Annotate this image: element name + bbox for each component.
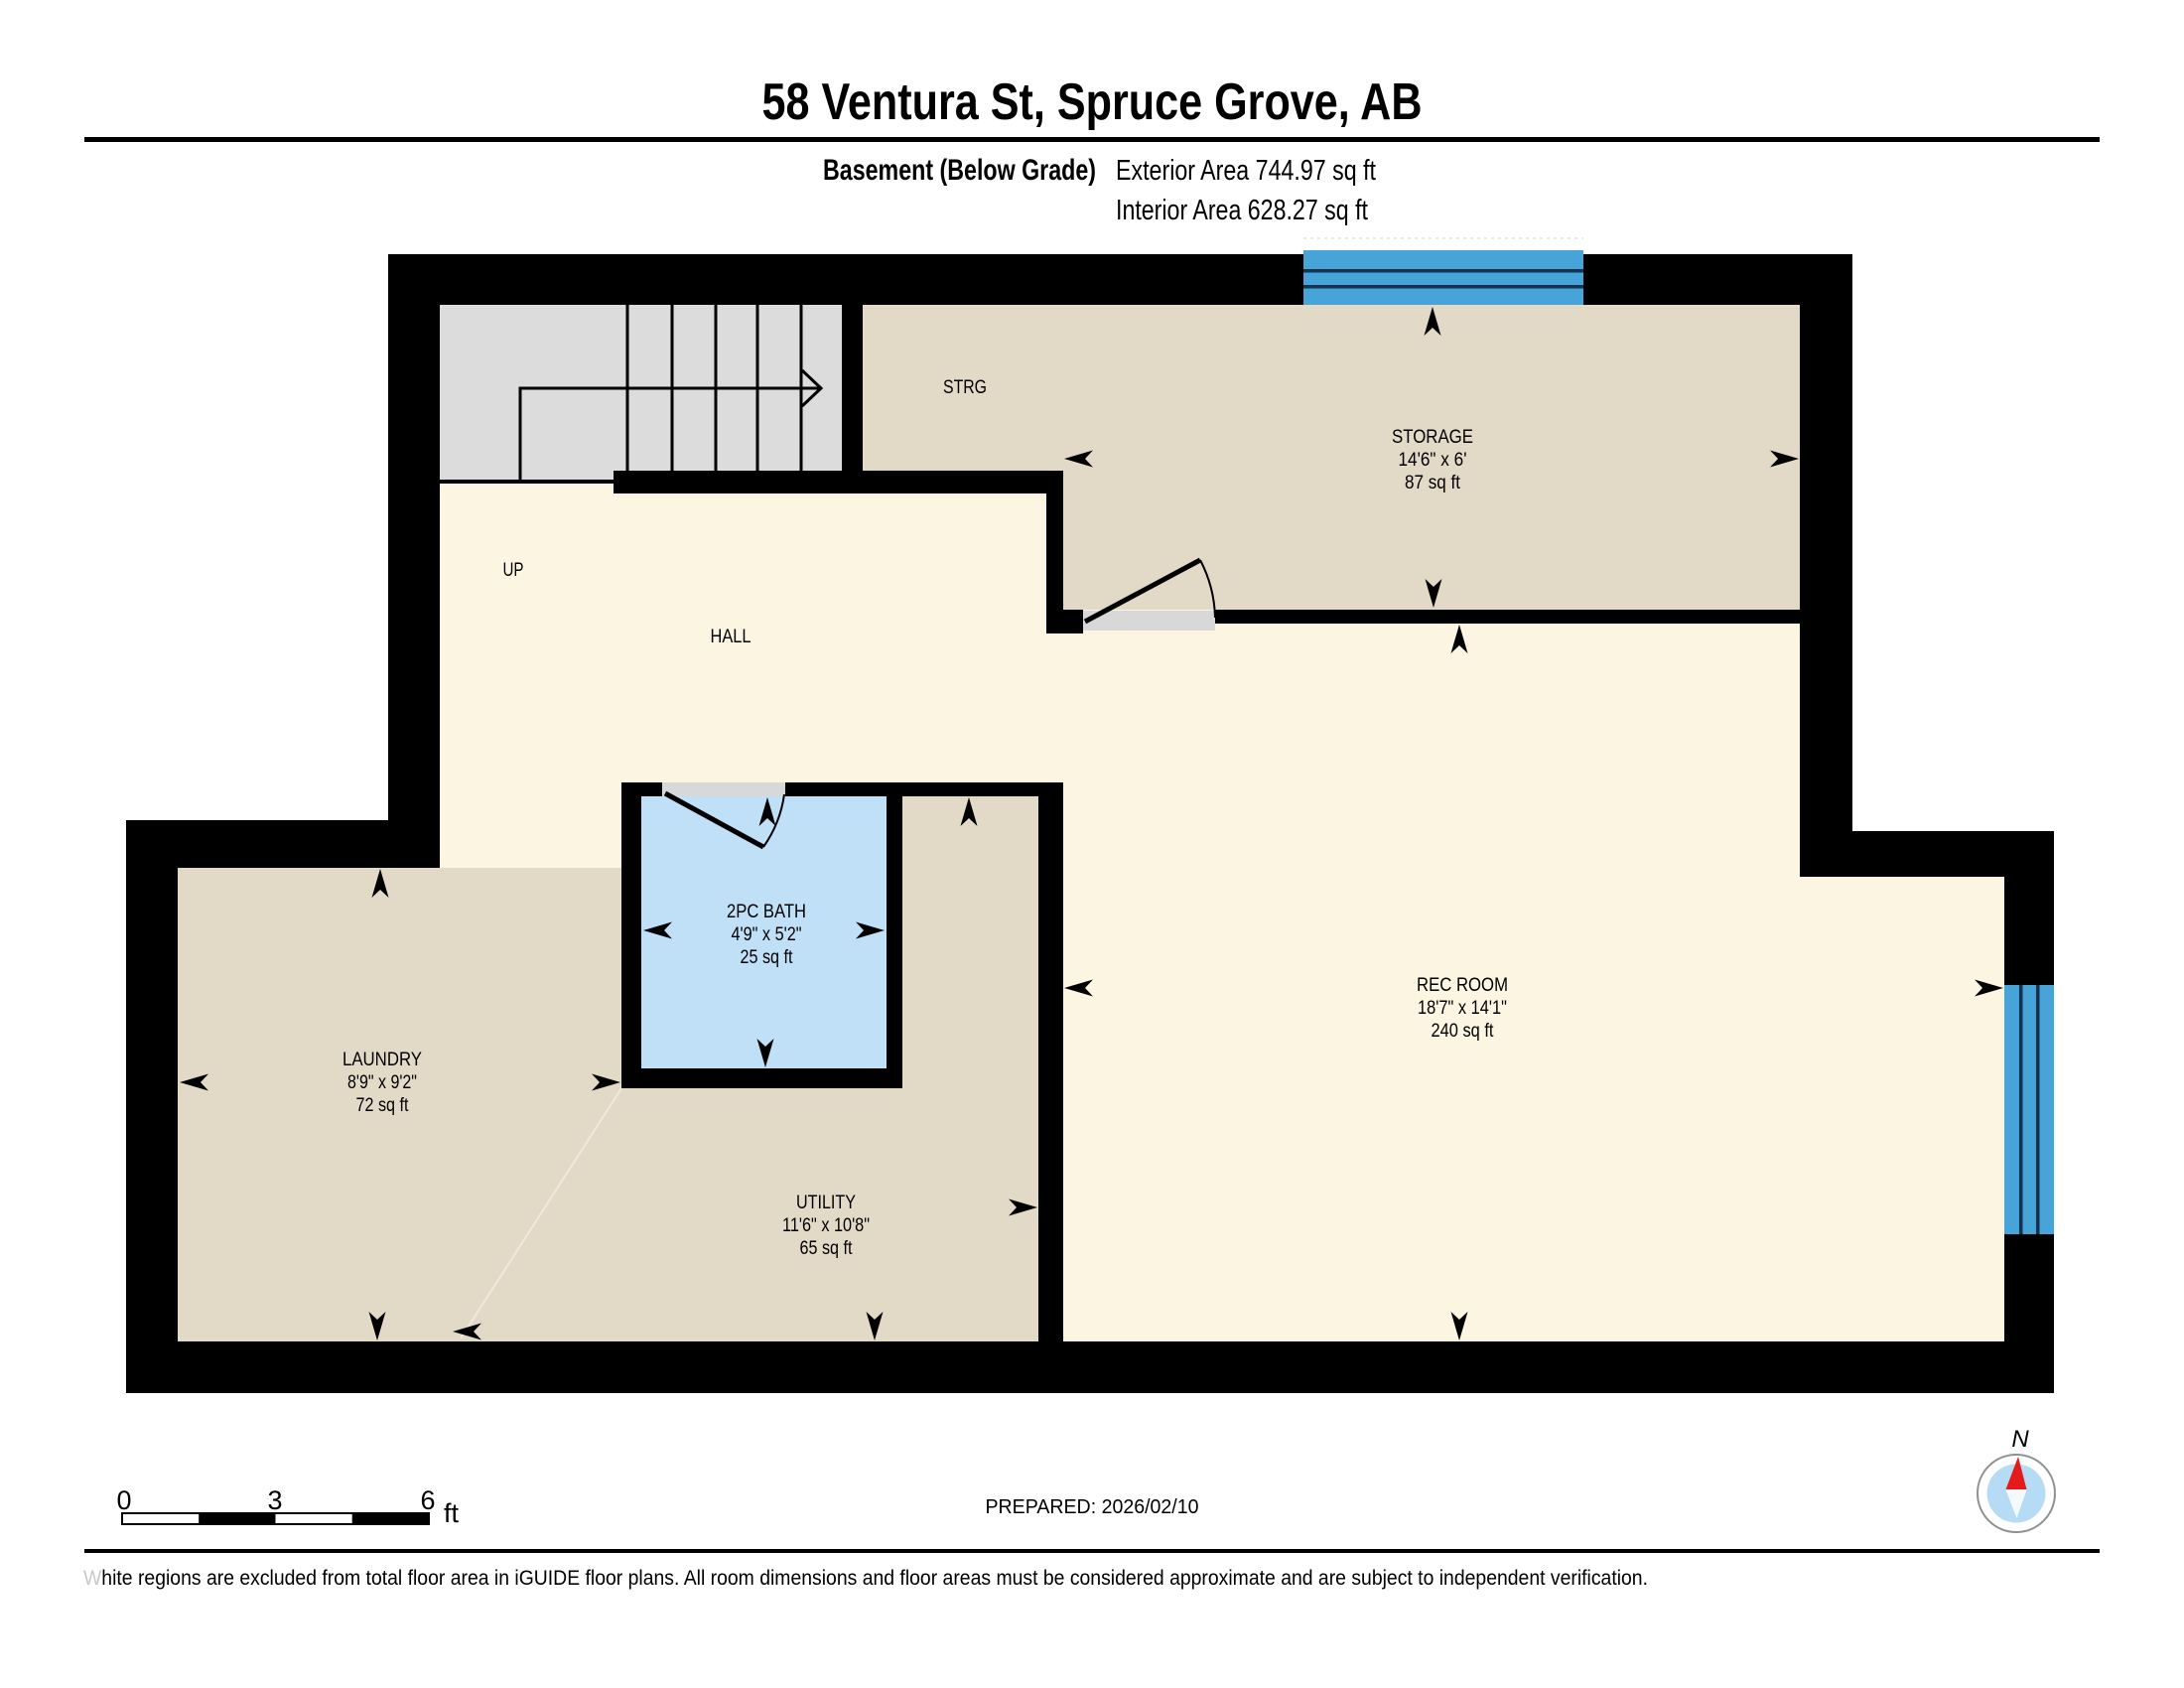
svg-text:18'7" x 14'1": 18'7" x 14'1" <box>1418 998 1507 1019</box>
svg-text:11'6" x 10'8": 11'6" x 10'8" <box>782 1215 870 1236</box>
svg-text:HALL: HALL <box>711 627 751 647</box>
svg-text:STRG: STRG <box>943 377 987 398</box>
svg-text:PREPARED: 2026/02/10: PREPARED: 2026/02/10 <box>986 1496 1199 1518</box>
svg-text:STORAGE: STORAGE <box>1392 427 1473 448</box>
svg-text:0: 0 <box>116 1485 131 1515</box>
svg-text:6: 6 <box>420 1485 435 1515</box>
svg-text:White regions are excluded fro: White regions are excluded from total fl… <box>83 1567 1648 1590</box>
svg-text:UP: UP <box>503 560 524 581</box>
svg-text:8'9" x 9'2": 8'9" x 9'2" <box>347 1072 417 1093</box>
svg-text:65 sq ft: 65 sq ft <box>800 1238 854 1259</box>
svg-text:ft: ft <box>444 1498 460 1528</box>
svg-text:4'9" x 5'2": 4'9" x 5'2" <box>732 924 802 945</box>
svg-text:14'6" x 6': 14'6" x 6' <box>1399 450 1467 471</box>
svg-text:87 sq ft: 87 sq ft <box>1405 473 1461 493</box>
svg-text:Basement (Below Grade): Basement (Below Grade) <box>823 154 1096 187</box>
svg-text:UTILITY: UTILITY <box>796 1193 856 1213</box>
svg-text:72 sq ft: 72 sq ft <box>356 1095 410 1116</box>
svg-text:Exterior Area 744.97 sq ft: Exterior Area 744.97 sq ft <box>1116 155 1376 187</box>
svg-text:2PC BATH: 2PC BATH <box>727 902 806 922</box>
svg-text:LAUNDRY: LAUNDRY <box>342 1050 422 1070</box>
svg-text:REC ROOM: REC ROOM <box>1417 975 1508 996</box>
svg-text:25 sq ft: 25 sq ft <box>741 947 794 968</box>
svg-text:240 sq ft: 240 sq ft <box>1432 1021 1495 1042</box>
svg-text:3: 3 <box>267 1485 282 1515</box>
svg-text:N: N <box>2011 1426 2029 1453</box>
svg-text:Interior Area 628.27 sq ft: Interior Area 628.27 sq ft <box>1116 195 1368 226</box>
svg-text:58 Ventura St, Spruce Grove, A: 58 Ventura St, Spruce Grove, AB <box>762 73 1423 131</box>
